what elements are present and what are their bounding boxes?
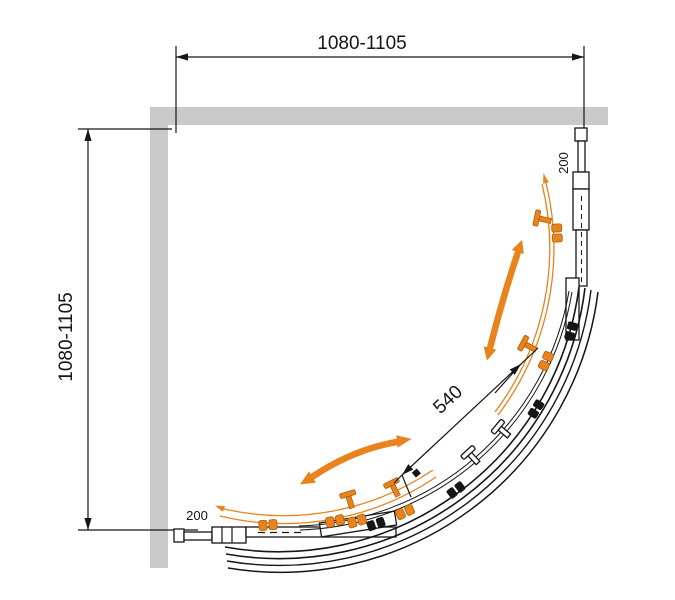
panel-bracket xyxy=(491,419,514,442)
profile-neck xyxy=(184,532,212,540)
door-edge-arrow-icon xyxy=(215,506,225,512)
arrow-body xyxy=(490,252,518,348)
arrowhead-icon xyxy=(512,240,524,254)
arrowhead-icon xyxy=(396,435,411,448)
profile-neck xyxy=(578,141,585,172)
wall-profile-bottom: 200 xyxy=(174,508,397,543)
slide-arrow-lower xyxy=(300,435,412,484)
profile-body xyxy=(212,527,246,543)
drawing-canvas: 1080-1105 1080-1105 200 200 xyxy=(0,0,675,600)
arrow-body xyxy=(312,442,397,477)
profile-body xyxy=(573,172,589,189)
arrowhead-icon xyxy=(484,346,497,360)
door-edge-arrow-icon xyxy=(543,173,549,184)
dimension-label-opening: 540 xyxy=(429,381,467,418)
track-roller xyxy=(446,481,466,500)
technical-drawing: 1080-1105 1080-1105 200 200 xyxy=(0,0,675,600)
door-bracket xyxy=(533,210,553,229)
profile-adjustment-label: 200 xyxy=(556,152,571,174)
door-roller xyxy=(395,504,416,521)
profile-adjustment-label: 200 xyxy=(186,508,208,523)
door-bracket xyxy=(339,489,359,510)
profile-cap xyxy=(575,128,587,141)
slide-arrow-upper xyxy=(484,240,524,361)
dimension-label-width: 1080-1105 xyxy=(317,33,406,54)
wall-top xyxy=(150,107,608,125)
profile-cap xyxy=(174,529,184,542)
track-arc xyxy=(226,288,585,559)
door-roller xyxy=(538,351,555,372)
dimension-label-height: 1080-1105 xyxy=(56,292,77,381)
dimension-line xyxy=(402,364,521,475)
wall-left xyxy=(150,107,168,568)
glass-fastener xyxy=(412,468,421,477)
dimension-left: 1080-1105 xyxy=(56,129,198,530)
